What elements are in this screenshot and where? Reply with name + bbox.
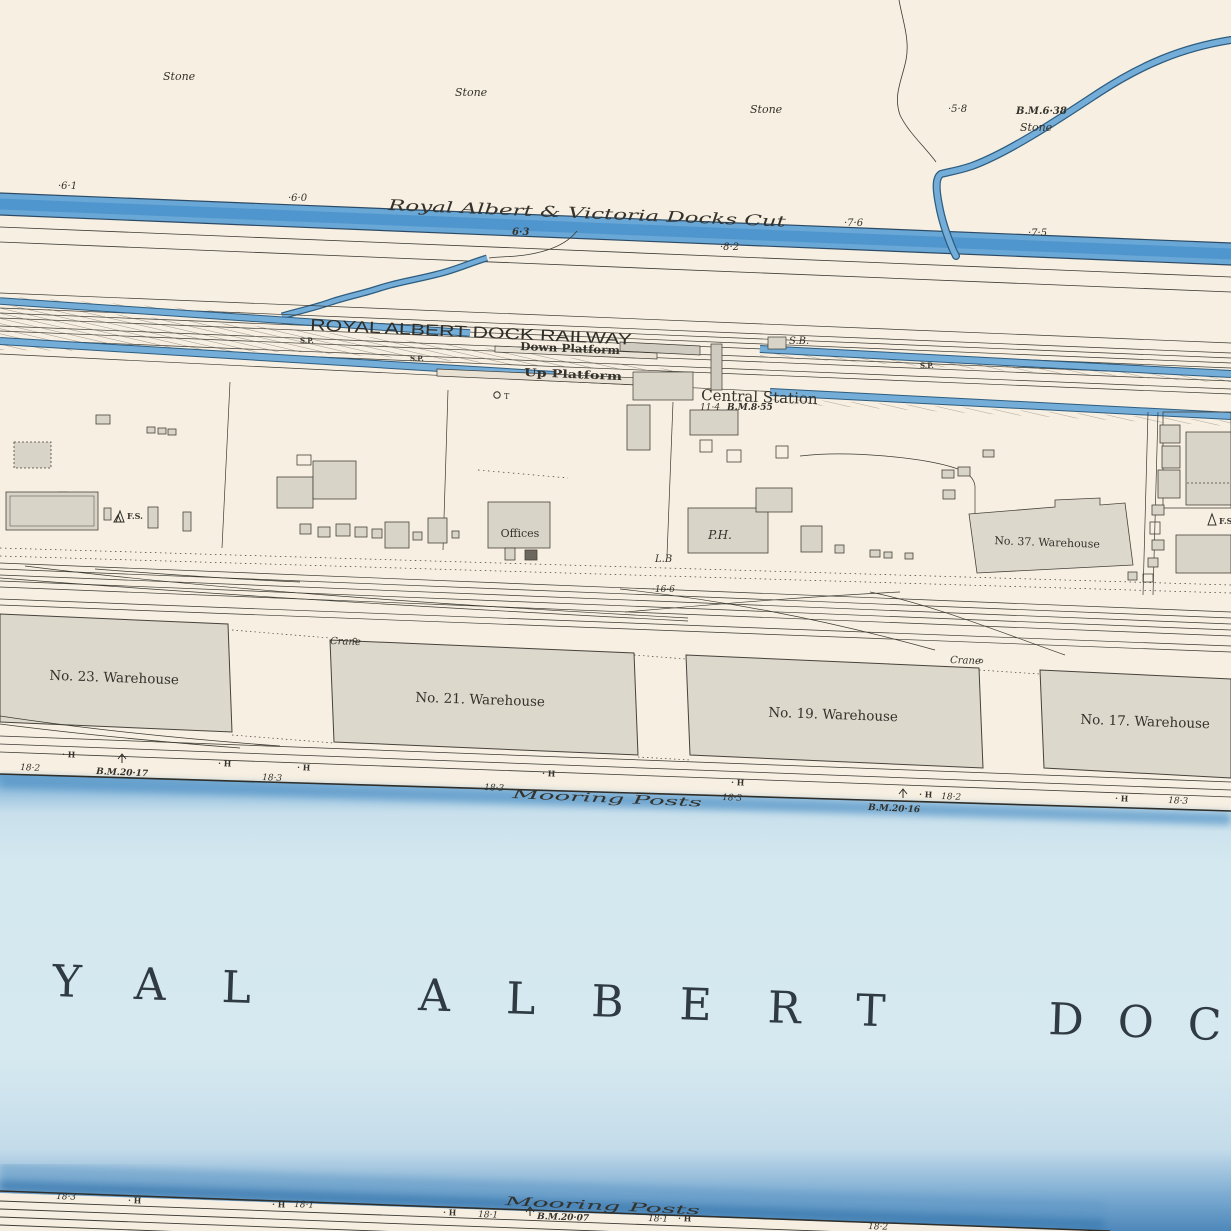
signal-post-label: S.P. (300, 336, 314, 345)
map-stage: Stone Stone Stone Stone B.M.6·38 ·5·8 ·6… (0, 0, 1231, 1231)
dock-name-part3: DOC (1048, 994, 1231, 1052)
signal-box-hut (768, 337, 786, 349)
svg-text:· H: · H (678, 1213, 692, 1223)
spot-height-183: 18·3 (1168, 796, 1189, 807)
station-building (633, 372, 693, 400)
benchmark-855: B.M.8·55 (726, 403, 773, 413)
spot-height-182: 18·2 (941, 792, 962, 803)
spot-height-181: 18·1 (478, 1210, 498, 1221)
letter-box-label: L.B (654, 554, 672, 565)
stone-label: Stone (455, 86, 488, 99)
spot-height-183: 18·3 (262, 773, 283, 784)
stone-label: Stone (750, 103, 783, 116)
spot-height-182: 18·2 (868, 1222, 889, 1231)
spot-height-61: ·6·1 (58, 181, 77, 192)
signal-post-label: S.P. (410, 354, 424, 363)
spot-height-76: ·7·6 (844, 218, 864, 229)
benchmark-2007: B.M.20·07 (536, 1212, 590, 1224)
spot-height-60: ·6·0 (288, 193, 308, 204)
footbridge (711, 344, 722, 390)
svg-text:· H: · H (542, 768, 556, 779)
stone-label: Stone (163, 70, 196, 83)
spot-height-183: 18·3 (722, 793, 743, 804)
spot-height-182: 18·2 (20, 763, 41, 774)
signal-post-label: S.P. (920, 361, 934, 370)
telephone-label: T (504, 392, 510, 401)
benchmark-638: B.M.6·38 (1015, 106, 1067, 117)
crane-label: Crane (330, 636, 361, 648)
svg-text:· H: · H (297, 762, 311, 773)
svg-text:· H: · H (62, 749, 76, 760)
offices-label: Offices (501, 527, 540, 540)
spot-height-181: 18·1 (294, 1200, 314, 1211)
svg-text:· H: · H (1115, 793, 1129, 804)
svg-text:· H: · H (731, 777, 745, 788)
spot-height-183: 18·3 (56, 1192, 77, 1203)
flagstaff-label: F.S. (1219, 516, 1231, 526)
spot-height-75: ·7·5 (1028, 228, 1047, 239)
spot-height-166: ·16·6 (652, 585, 675, 595)
flagstaff-label: F.S. (127, 511, 143, 521)
spot-height-63: 6·3 (512, 227, 529, 238)
svg-text:· H: · H (919, 789, 933, 800)
dock-name-part1: YAL (51, 956, 308, 1016)
spot-height-181: 18·1 (648, 1214, 668, 1225)
svg-text:· H: · H (128, 1195, 142, 1205)
crane-label: Crane (950, 655, 981, 667)
svg-text:· H: · H (272, 1199, 286, 1209)
offices-building (488, 502, 550, 548)
signal-box-label: S.B. (789, 336, 809, 347)
stone-label: Stone (1020, 121, 1053, 134)
spot-height-58: ·5·8 (948, 104, 967, 115)
svg-text:· H: · H (443, 1207, 457, 1217)
spot-height-114: 11·4 (700, 403, 720, 413)
svg-text:· H: · H (218, 758, 232, 769)
ordnance-map: Stone Stone Stone Stone B.M.6·38 ·5·8 ·6… (0, 0, 1231, 1231)
spot-height-82: ·8·2 (720, 242, 739, 253)
spot-height-183: 18·3 (484, 783, 505, 794)
public-house-label: P.H. (707, 528, 732, 542)
